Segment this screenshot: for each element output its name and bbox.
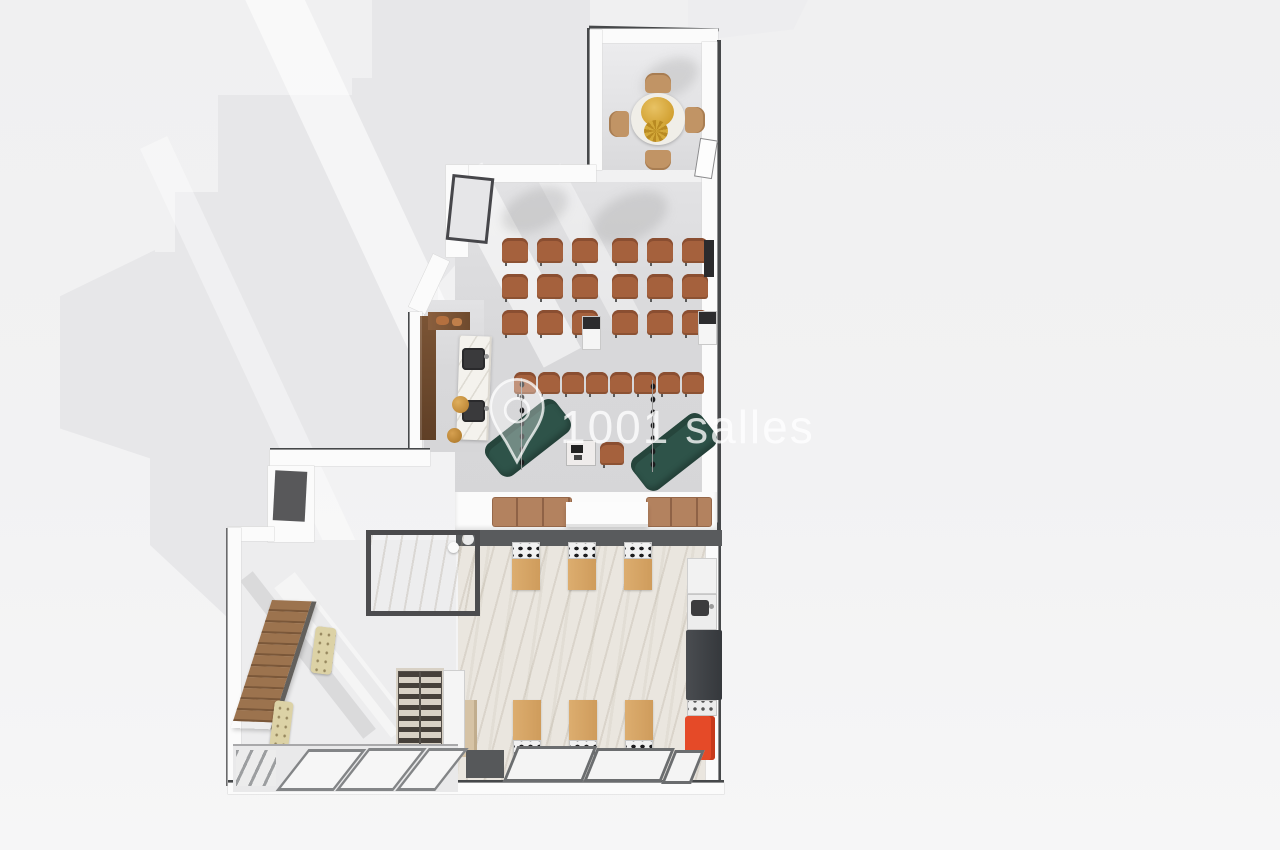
theater-chair	[647, 310, 673, 335]
floor-mat	[466, 750, 504, 778]
theater-chair	[502, 274, 528, 299]
glass-floor-panel	[583, 748, 675, 782]
dining-chair	[645, 73, 671, 93]
wall	[590, 29, 718, 43]
watermark-text: 1001 salles	[560, 400, 815, 454]
theater-chair	[537, 274, 563, 299]
wall	[270, 450, 430, 466]
theater-chair	[612, 310, 638, 335]
cast-shadow-extension	[60, 250, 155, 460]
copper-pot	[452, 318, 462, 326]
bar-stool	[447, 428, 462, 443]
theater-chair	[647, 274, 673, 299]
theater-chair	[502, 310, 528, 335]
dining-chair	[645, 150, 671, 170]
oven-controls	[687, 700, 717, 716]
theater-chair	[537, 238, 563, 263]
window	[446, 174, 495, 244]
stair-step	[233, 710, 276, 722]
theater-chair	[572, 274, 598, 299]
theater-row	[502, 274, 708, 299]
faucet	[484, 354, 489, 359]
wine-rack	[420, 671, 442, 748]
speaker-stand	[582, 316, 601, 350]
theater-chair	[572, 238, 598, 263]
banquette-bench	[492, 497, 572, 527]
cooktop	[512, 542, 540, 559]
storage-sink	[448, 542, 459, 553]
dining-chair	[685, 107, 705, 133]
glass-floor-panel	[503, 746, 598, 782]
theater-chair	[502, 238, 528, 263]
sink-basin	[691, 600, 709, 616]
faucet	[709, 604, 714, 609]
tv-panel	[704, 240, 714, 277]
theater-chair	[647, 238, 673, 263]
cooktop	[568, 542, 596, 559]
bar-sink	[462, 348, 485, 370]
cook-station	[624, 542, 652, 590]
copper-pot	[436, 316, 449, 325]
watermark: 1001 salles	[488, 376, 815, 468]
wall	[590, 30, 602, 170]
white-table	[566, 502, 648, 524]
wine-rack	[398, 671, 420, 748]
theater-row	[502, 310, 708, 335]
terrace-slats	[236, 750, 276, 786]
theater-chair	[682, 274, 708, 299]
storage-room	[366, 530, 480, 616]
partition-panel	[443, 670, 465, 750]
location-pin-icon	[488, 376, 546, 468]
speaker-stand	[698, 311, 717, 345]
cook-station	[512, 542, 540, 590]
fridge	[686, 630, 722, 700]
cook-stations-top	[512, 542, 652, 590]
bar-stool	[452, 396, 469, 413]
cook-station	[568, 542, 596, 590]
wall-panel	[273, 470, 308, 522]
kitchen-cabinet	[687, 558, 717, 594]
cooktop	[624, 542, 652, 559]
dining-chair	[609, 111, 629, 137]
theater-row	[502, 238, 708, 263]
floorplan-render: 1001 salles	[0, 0, 1280, 850]
theater-chair	[612, 274, 638, 299]
bar-wood-panel	[420, 316, 436, 440]
banquette-bench	[646, 497, 712, 527]
theater-chair	[537, 310, 563, 335]
gold-pendant	[644, 120, 668, 142]
theater-chair	[612, 238, 638, 263]
bar-back-counter	[428, 312, 470, 330]
